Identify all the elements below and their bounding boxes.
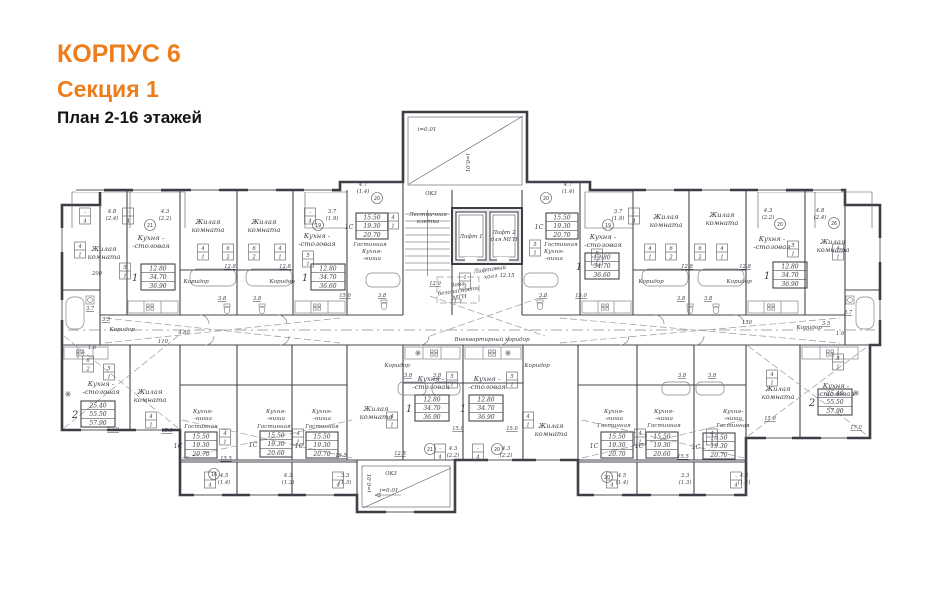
room-tag: 41 — [275, 244, 286, 261]
balcony-tag: –4 — [123, 208, 134, 225]
svg-text:4: 4 — [609, 483, 613, 489]
svg-text:–: – — [337, 474, 340, 480]
svg-text:2: 2 — [697, 255, 701, 261]
svg-text:4: 4 — [525, 414, 529, 420]
svg-text:комната: комната — [762, 393, 795, 401]
room-label-living: Жилаякомната — [650, 213, 683, 229]
svg-text:(2.4): (2.4) — [106, 215, 119, 222]
svg-text:4.7: 4.7 — [358, 182, 368, 188]
svg-text:1: 1 — [123, 274, 126, 280]
svg-text:1: 1 — [296, 440, 299, 446]
room-tag: 51 — [507, 372, 518, 389]
room-tag: 41 — [717, 244, 728, 261]
svg-text:4: 4 — [390, 215, 394, 221]
balcony-tag: –4 — [629, 208, 640, 225]
dim: 11.3 — [450, 299, 462, 305]
svg-text:1: 1 — [78, 253, 81, 259]
svg-text:Кухня-: Кухня- — [603, 409, 624, 415]
svg-text:5: 5 — [107, 366, 110, 372]
svg-text:4: 4 — [82, 219, 86, 225]
svg-text:3.3: 3.3 — [681, 473, 690, 479]
toilets — [224, 300, 719, 314]
svg-text:34.70: 34.70 — [477, 405, 494, 412]
svg-text:комната: комната — [817, 246, 850, 254]
svg-text:(1.9): (1.9) — [612, 215, 625, 222]
main-corridor-label: Внеквартирный коридор — [453, 337, 530, 343]
svg-text:4: 4 — [637, 431, 641, 437]
svg-text:1: 1 — [391, 224, 394, 230]
room-tag: 62 — [666, 244, 677, 261]
balcony-label: 4.7(1.4) — [357, 182, 370, 195]
room-tag: 62 — [249, 244, 260, 261]
svg-text:Жилая: Жилая — [195, 218, 221, 226]
svg-text:1: 1 — [406, 404, 412, 415]
svg-text:34.70: 34.70 — [781, 272, 798, 279]
svg-text:–: – — [633, 210, 636, 216]
svg-text:Кухня-: Кухня- — [722, 409, 743, 415]
svg-text:1: 1 — [149, 423, 152, 429]
dim: 12.0 — [429, 281, 441, 287]
area-table: 112.8034.7036.90 — [764, 262, 807, 288]
svg-text:36.90: 36.90 — [423, 414, 440, 421]
svg-text:1: 1 — [764, 271, 770, 282]
svg-text:–: – — [84, 210, 87, 216]
svg-text:12.80: 12.80 — [423, 397, 440, 404]
svg-text:i=0.01: i=0.01 — [367, 474, 373, 493]
dim: 15.0 — [339, 293, 351, 299]
svg-text:57.90: 57.90 — [89, 420, 106, 427]
svg-text:-ниша: -ниша — [724, 416, 742, 422]
svg-text:1: 1 — [450, 383, 453, 389]
room-label-living: Жилаякомната — [192, 218, 225, 234]
svg-text:12.80: 12.80 — [477, 397, 494, 404]
room-tag: 51 — [104, 364, 115, 381]
axis-marker: 16 — [209, 469, 220, 480]
drawing-sheet: КОРПУС 6 Секция 1 План 2-16 этажей — [0, 0, 941, 600]
dim: 15.5 — [335, 453, 347, 459]
svg-text:Кухня -: Кухня - — [589, 233, 617, 241]
axis-marker: 19 — [603, 220, 614, 231]
svg-text:-столовая: -столовая — [584, 241, 622, 249]
svg-text:холл: холл — [484, 273, 499, 281]
svg-text:26: 26 — [831, 221, 837, 227]
svg-text:12.80: 12.80 — [319, 266, 336, 273]
svg-text:–: – — [127, 210, 130, 216]
room-label-kitchenette: Кухня--ниша — [722, 409, 743, 422]
svg-text:3.3: 3.3 — [341, 473, 350, 479]
svg-text:20.70: 20.70 — [709, 452, 727, 459]
svg-text:1С: 1С — [535, 224, 544, 231]
svg-text:(2.2): (2.2) — [762, 214, 775, 221]
svg-text:15.50: 15.50 — [363, 215, 380, 222]
svg-text:4: 4 — [295, 431, 299, 437]
svg-text:2: 2 — [85, 367, 89, 373]
svg-text:25.40: 25.40 — [825, 391, 843, 398]
room-tag: 62 — [223, 244, 234, 261]
svg-text:комната: комната — [650, 221, 683, 229]
room-label-lounge: Гостинная — [596, 423, 631, 429]
svg-text:6: 6 — [226, 246, 230, 252]
room-label-kitchenette: Кухня--ниша — [361, 249, 382, 262]
room-label-kitchenette: Кухня--ниша — [311, 409, 332, 422]
svg-text:-столовая: -столовая — [753, 243, 791, 251]
svg-text:–: – — [439, 446, 442, 452]
svg-text:1: 1 — [595, 260, 598, 266]
svg-text:4: 4 — [389, 414, 393, 420]
dim: 15.0 — [452, 426, 464, 432]
svg-text:19.30: 19.30 — [653, 442, 670, 449]
balcony-tag: –4 — [80, 208, 91, 225]
room-tag: 41 — [388, 213, 399, 230]
svg-text:1: 1 — [638, 440, 641, 446]
room-label-lounge: Гостинная — [256, 424, 291, 430]
svg-text:(1.4): (1.4) — [218, 479, 231, 486]
svg-text:-ниша: -ниша — [194, 416, 212, 422]
svg-text:-столовая: -столовая — [298, 240, 336, 248]
dim: 110 — [158, 339, 169, 345]
dim: 15.0 — [161, 428, 173, 434]
svg-text:1: 1 — [770, 381, 773, 387]
room-label-corridor: Коридор — [383, 363, 410, 369]
balcony-label: 4.8(2.4) — [106, 209, 119, 222]
svg-text:–: – — [477, 446, 480, 452]
dim: 15.5 — [677, 454, 689, 460]
dim: 15.5 — [220, 456, 232, 462]
svg-text:2: 2 — [808, 398, 815, 409]
lift1-label: Лифт 1 — [458, 233, 482, 240]
svg-text:Жилая: Жилая — [653, 213, 679, 221]
axis-marker: 19 — [313, 220, 324, 231]
svg-text:55.50: 55.50 — [826, 399, 843, 406]
svg-text:34.70: 34.70 — [149, 274, 166, 281]
svg-text:4: 4 — [335, 483, 339, 489]
svg-text:20: 20 — [777, 222, 783, 228]
svg-text:1: 1 — [836, 255, 839, 261]
svg-text:2: 2 — [668, 255, 672, 261]
svg-text:19: 19 — [605, 223, 611, 229]
svg-text:20.60: 20.60 — [266, 450, 284, 457]
balcony-label: 4.8(2.4) — [814, 208, 827, 221]
svg-text:4: 4 — [647, 246, 651, 252]
svg-text:5: 5 — [791, 243, 794, 249]
room-label-kitchen: Кухня --столовая — [298, 232, 336, 248]
svg-text:5: 5 — [836, 356, 839, 362]
area-table: 1С15.5019.3020.70 — [590, 432, 633, 458]
svg-text:15.50: 15.50 — [553, 215, 570, 222]
svg-text:Жилая: Жилая — [137, 388, 163, 396]
svg-text:Лестничная: Лестничная — [408, 212, 447, 218]
svg-text:20: 20 — [604, 475, 610, 481]
svg-text:34.70: 34.70 — [423, 405, 440, 412]
room-label-corridor: Коридор — [108, 327, 135, 333]
svg-text:1: 1 — [576, 262, 582, 273]
svg-text:4.3: 4.3 — [739, 473, 749, 479]
svg-text:4.3: 4.3 — [448, 446, 458, 452]
room-label-living: Жилаякомната — [88, 245, 121, 261]
dim: 12.8 — [279, 264, 291, 270]
room-label-kitchenette: Кухня--ниша — [192, 409, 213, 422]
room-tag: 62 — [695, 244, 706, 261]
dim: 17.0 — [107, 427, 119, 433]
slope-label: i=0.01 — [464, 154, 470, 173]
svg-text:1: 1 — [510, 383, 513, 389]
svg-text:4: 4 — [125, 219, 129, 225]
dim: 1.6 — [88, 345, 97, 351]
svg-text:57.90: 57.90 — [826, 408, 843, 415]
svg-text:(1.9): (1.9) — [326, 215, 339, 222]
svg-text:1: 1 — [720, 255, 723, 261]
balcony-label: 3.7(1.9) — [612, 209, 625, 222]
room-label-kitchen: Кухня --столовая — [753, 235, 791, 251]
svg-text:15.50: 15.50 — [192, 434, 209, 441]
room-label-lounge: Гостинная — [352, 242, 387, 248]
svg-text:Кухня -: Кухня - — [303, 232, 331, 240]
dim: 15.0 — [764, 416, 776, 422]
svg-text:6: 6 — [252, 246, 256, 252]
svg-text:1: 1 — [302, 273, 308, 284]
axis-marker: 20 — [372, 193, 383, 204]
balcony-tag: –4 — [473, 444, 484, 461]
dim: 3.8 — [677, 296, 686, 302]
vent-symbols — [65, 350, 859, 397]
svg-text:4: 4 — [207, 483, 211, 489]
room-label-living: Жилаякомната — [706, 211, 739, 227]
room-tag: 51 — [120, 263, 131, 280]
svg-text:комната: комната — [88, 253, 121, 261]
room-label-corridor: Коридор — [637, 279, 664, 285]
svg-text:комната: комната — [248, 226, 281, 234]
svg-text:4: 4 — [307, 219, 311, 225]
dim: 3.7 — [844, 310, 853, 316]
svg-text:16: 16 — [211, 472, 217, 478]
svg-text:20.70: 20.70 — [362, 232, 380, 239]
area-table: 1С15.5019.3020.70 — [345, 213, 388, 239]
terrace-bottom-inner — [362, 466, 450, 507]
svg-text:4: 4 — [277, 246, 281, 252]
room-label-lounge: Гостинная — [646, 423, 681, 429]
svg-text:Кухня-: Кухня- — [265, 409, 286, 415]
axis-marker: 20 — [541, 193, 552, 204]
room-label-corridor: Коридор — [523, 363, 550, 369]
room-tag: 41 — [198, 244, 209, 261]
svg-text:комната: комната — [134, 396, 167, 404]
svg-text:-ниша: -ниша — [313, 416, 331, 422]
svg-text:2: 2 — [251, 255, 255, 261]
dim: 12.8 — [739, 264, 751, 270]
room-label-kitchenette: Кухня--ниша — [603, 409, 624, 422]
dim: 12.8 — [224, 264, 236, 270]
dim: 3.8 — [678, 373, 687, 379]
svg-text:3.7: 3.7 — [328, 209, 337, 215]
svg-text:20: 20 — [494, 447, 500, 453]
svg-text:4: 4 — [631, 219, 635, 225]
room-tag: 41 — [220, 429, 231, 446]
svg-text:20.70: 20.70 — [312, 451, 330, 458]
svg-text:Жилая: Жилая — [251, 218, 277, 226]
room-label-lounge: Гостинная — [183, 424, 218, 430]
stair-label: Лестничнаяклетка — [408, 212, 447, 225]
svg-text:-ниша: -ниша — [363, 256, 381, 262]
room-tag: 41 — [146, 412, 157, 429]
svg-text:клетка: клетка — [417, 219, 439, 225]
svg-text:2: 2 — [71, 410, 78, 421]
dim: 3.8 — [433, 373, 442, 379]
svg-text:4.3: 4.3 — [763, 208, 773, 214]
svg-text:15.50: 15.50 — [313, 434, 330, 441]
svg-text:19.30: 19.30 — [608, 442, 625, 449]
dim: 17.0 — [850, 425, 862, 431]
svg-text:(2.2): (2.2) — [159, 215, 172, 222]
dim: 4.80 — [177, 330, 190, 336]
svg-text:25.40: 25.40 — [88, 403, 106, 410]
svg-text:1: 1 — [648, 255, 651, 261]
svg-text:15.50: 15.50 — [267, 433, 284, 440]
svg-text:1С: 1С — [174, 443, 183, 450]
svg-text:Кухня-: Кухня- — [543, 249, 564, 255]
svg-text:комната: комната — [192, 226, 225, 234]
dim: 3.5 — [822, 321, 830, 327]
svg-text:20: 20 — [543, 196, 549, 202]
room-label-kitchen: Кухня --столовая — [412, 375, 450, 391]
svg-text:i=0.01: i=0.01 — [464, 154, 470, 173]
svg-text:1: 1 — [460, 404, 466, 415]
svg-text:2: 2 — [225, 255, 229, 261]
room-label-living: Жилаякомната — [817, 238, 850, 254]
balcony-label: 4.7(1.4) — [562, 182, 575, 195]
svg-text:19.30: 19.30 — [192, 442, 209, 449]
svg-text:19.30: 19.30 — [313, 442, 330, 449]
dim: 12.8 — [394, 451, 406, 457]
dim: 3.8 — [253, 296, 262, 302]
svg-text:5: 5 — [595, 251, 598, 257]
svg-text:Кухня -: Кухня - — [87, 380, 115, 388]
svg-text:20.70: 20.70 — [607, 451, 625, 458]
axis-marker: 21 — [425, 444, 436, 455]
balcony-label: 4.3(2.2) — [159, 209, 172, 222]
floor-plan: Жилаякомната Жилаякомната Жилаякомната Ж… — [0, 0, 941, 600]
dim: 3.8 — [708, 373, 717, 379]
svg-text:12.80: 12.80 — [781, 264, 798, 271]
svg-text:19.30: 19.30 — [363, 223, 380, 230]
room-label-kitchen: Кухня --столовая — [584, 233, 622, 249]
svg-text:4.5: 4.5 — [219, 473, 229, 479]
svg-text:6: 6 — [669, 246, 673, 252]
svg-text:комната: комната — [706, 219, 739, 227]
svg-text:21: 21 — [427, 447, 433, 453]
svg-text:20.60: 20.60 — [652, 451, 670, 458]
svg-text:5: 5 — [450, 374, 453, 380]
svg-text:-ниша: -ниша — [267, 416, 285, 422]
dim: 200 — [91, 271, 103, 277]
svg-text:5: 5 — [123, 265, 126, 271]
svg-text:20.70: 20.70 — [191, 451, 209, 458]
svg-text:1: 1 — [306, 262, 309, 268]
dim: 15.0 — [506, 426, 518, 432]
dim: 12.15 — [500, 273, 515, 279]
dim: 3.7 — [86, 306, 95, 312]
dim: 3.8 — [404, 373, 413, 379]
room-label-lounge: Гостинная — [715, 423, 750, 429]
svg-text:15.50: 15.50 — [608, 434, 625, 441]
svg-text:4.3: 4.3 — [283, 473, 293, 479]
svg-text:-столовая: -столовая — [82, 388, 120, 396]
svg-text:(1.4): (1.4) — [357, 188, 370, 195]
svg-text:4: 4 — [835, 246, 839, 252]
svg-text:(1.3): (1.3) — [679, 479, 692, 486]
svg-text:-столовая: -столовая — [412, 383, 450, 391]
balcony-label: 4.3(2.2) — [762, 208, 775, 221]
room-tag: 41 — [645, 244, 656, 261]
room-label-living: Жилаякомната — [248, 218, 281, 234]
plan-texts: Жилаякомната Жилаякомната Жилаякомната Ж… — [71, 127, 863, 494]
room-label-living: Жилаякомната — [762, 385, 795, 401]
svg-text:1: 1 — [791, 252, 794, 258]
svg-text:36.90: 36.90 — [781, 281, 798, 288]
svg-text:4: 4 — [709, 431, 713, 437]
window-mark: ОК3 — [385, 471, 397, 477]
room-label-kitchenette: Кухня--ниша — [653, 409, 674, 422]
slope-label: i=0.01 — [418, 127, 437, 133]
dim: 3.5 — [102, 317, 110, 323]
dim: 3.8 — [704, 296, 713, 302]
slope-label: i=0.01 — [367, 474, 373, 493]
room-label-living: Жилаякомната — [134, 388, 167, 404]
svg-text:1: 1 — [463, 275, 466, 281]
balcony-tag: –4 — [305, 208, 316, 225]
dim: 3.8 — [539, 293, 548, 299]
svg-text:1С: 1С — [590, 443, 599, 450]
svg-text:4: 4 — [437, 455, 441, 461]
room-tag: 41 — [523, 412, 534, 429]
svg-text:4.5: 4.5 — [617, 473, 627, 479]
elevator-2-car — [490, 212, 518, 260]
room-tag: 51 — [530, 240, 541, 257]
svg-text:19: 19 — [315, 223, 321, 229]
balcony-label: 4.3(1.4) — [738, 473, 751, 486]
axis-marker: 21 — [145, 220, 156, 231]
axis-marker: 26 — [829, 218, 840, 229]
svg-text:5: 5 — [306, 253, 309, 259]
svg-text:1: 1 — [132, 273, 138, 284]
svg-text:4: 4 — [475, 455, 479, 461]
svg-text:34.70: 34.70 — [319, 274, 336, 281]
svg-text:4: 4 — [719, 246, 723, 252]
svg-text:–: – — [735, 474, 738, 480]
room-label-kitchen: Кухня --столовая — [82, 380, 120, 396]
svg-text:1: 1 — [107, 375, 110, 381]
room-label-kitchen: Кухня --столовая — [132, 234, 170, 250]
svg-text:1: 1 — [223, 440, 226, 446]
svg-text:Кухня-: Кухня- — [192, 409, 213, 415]
svg-text:4: 4 — [733, 483, 737, 489]
room-tag: 51 — [833, 354, 844, 371]
svg-text:–: – — [309, 210, 312, 216]
svg-text:для МГН: для МГН — [491, 237, 518, 243]
svg-text:Лифт 2: Лифт 2 — [491, 229, 516, 236]
svg-text:36.90: 36.90 — [477, 414, 494, 421]
svg-text:Жилая: Жилая — [91, 245, 117, 253]
svg-text:3.7: 3.7 — [614, 209, 623, 215]
svg-text:6: 6 — [698, 246, 702, 252]
svg-text:-столовая: -столовая — [468, 383, 506, 391]
room-tag: 51 — [303, 251, 314, 268]
svg-text:4: 4 — [77, 244, 81, 250]
svg-text:36.90: 36.90 — [149, 283, 166, 290]
svg-text:(2.2): (2.2) — [500, 452, 513, 459]
area-table: 112.8034.7036.90 — [406, 395, 449, 421]
svg-text:Кухня -: Кухня - — [473, 375, 501, 383]
room-label-lounge: Гостинная — [543, 242, 578, 248]
